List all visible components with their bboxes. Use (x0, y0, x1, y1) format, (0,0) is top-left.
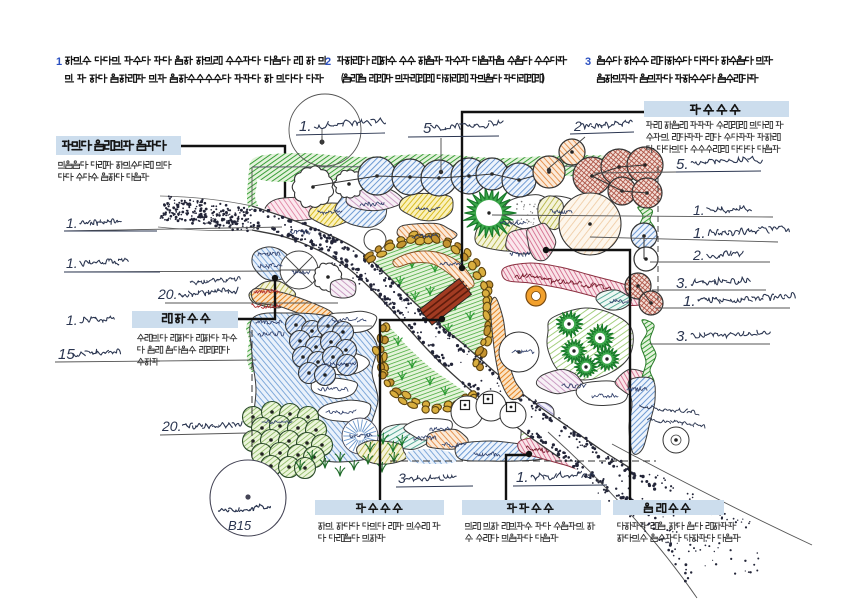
svg-text:3.: 3. (676, 275, 689, 292)
svg-text:2: 2 (573, 118, 582, 134)
svg-text:15: 15 (58, 346, 75, 363)
svg-text:2.: 2. (692, 247, 705, 263)
svg-text:B15: B15 (228, 518, 252, 533)
svg-text:3: 3 (398, 470, 406, 486)
svg-text:1.: 1. (299, 118, 312, 135)
svg-text:1.: 1. (66, 312, 78, 328)
svg-text:3: 3 (585, 56, 591, 68)
svg-text:1.: 1. (693, 202, 705, 218)
svg-text:1.: 1. (66, 215, 78, 231)
svg-text:1.: 1. (516, 469, 529, 486)
svg-text:2: 2 (325, 56, 331, 68)
svg-text:1.: 1. (683, 293, 696, 310)
svg-text:3.: 3. (676, 328, 689, 345)
svg-text:5.: 5. (676, 156, 689, 173)
svg-text:20.: 20. (161, 418, 181, 434)
svg-text:5: 5 (423, 120, 432, 137)
svg-text:20.: 20. (157, 286, 177, 302)
svg-text:1.: 1. (693, 225, 706, 242)
svg-text:1.: 1. (66, 255, 78, 271)
svg-text:1: 1 (56, 56, 62, 68)
